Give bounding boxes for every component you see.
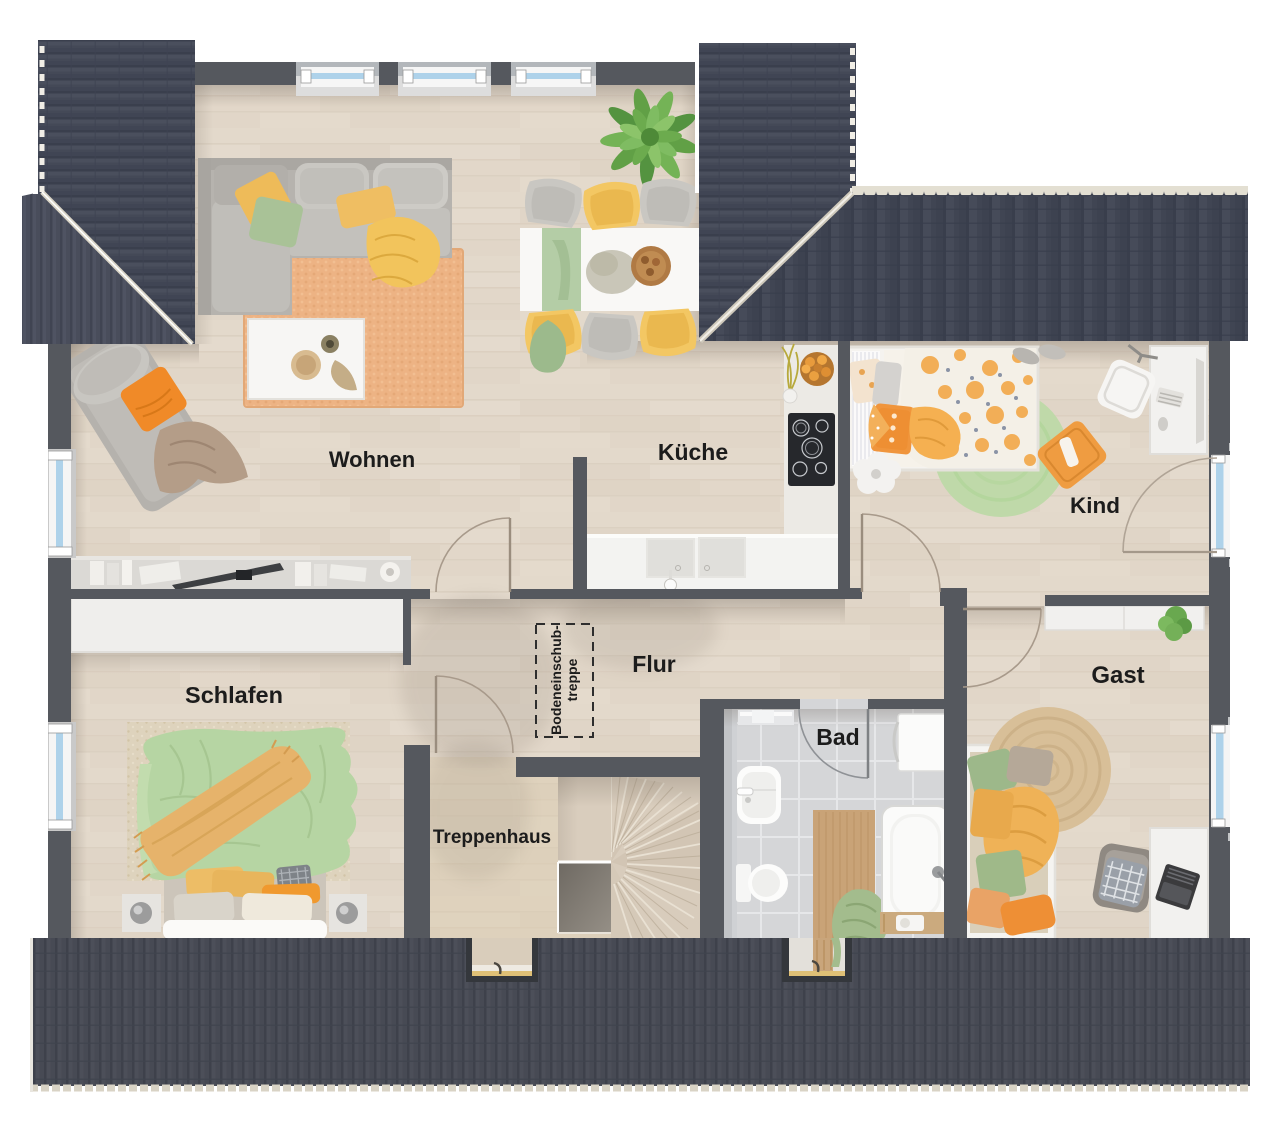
svg-text:Bodeneinschub-: Bodeneinschub- <box>548 625 564 735</box>
svg-text:Treppenhaus: Treppenhaus <box>433 827 551 848</box>
svg-text:Gast: Gast <box>1091 662 1144 689</box>
svg-text:treppe: treppe <box>564 658 580 701</box>
svg-text:Flur: Flur <box>632 651 675 677</box>
svg-text:Schlafen: Schlafen <box>185 682 283 708</box>
svg-text:Bad: Bad <box>816 724 859 750</box>
svg-text:Kind: Kind <box>1070 493 1120 518</box>
svg-text:Wohnen: Wohnen <box>329 447 415 472</box>
svg-text:Küche: Küche <box>658 439 728 465</box>
